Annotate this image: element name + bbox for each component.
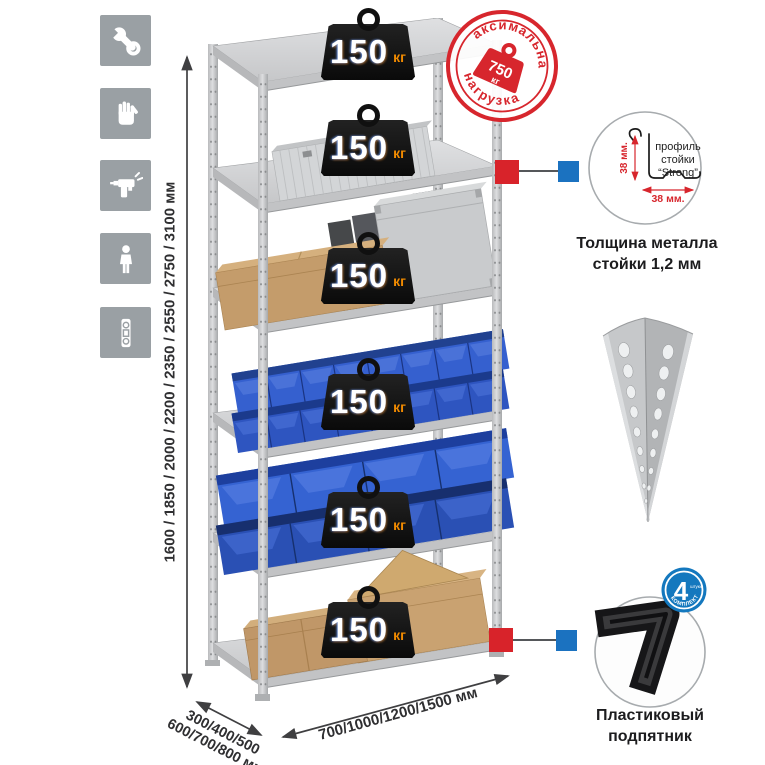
shelf-load-badge-4: 150кг (321, 358, 415, 430)
drill-glyph (109, 169, 143, 203)
callout-marker-blue-bottom (556, 630, 577, 651)
weight-handle-icon (357, 232, 380, 255)
max-load-stamp: максимальная нагрузка 750 кг (437, 2, 567, 130)
load-unit: кг (393, 517, 406, 533)
foot-caption-line2: подпятник (565, 726, 735, 747)
gloves-glyph (109, 97, 143, 131)
profile-label-line1: профиль (655, 141, 701, 153)
callout-marker-red-top (495, 160, 519, 184)
load-value: 150 (330, 257, 388, 295)
profile-dim-horizontal-label: 38 мм. (651, 193, 684, 205)
foot-caption-line1: Пластиковый (565, 705, 735, 726)
foot-caption: Пластиковый подпятник (565, 705, 735, 747)
shelf-load-badge-3: 150кг (321, 232, 415, 304)
load-unit: кг (393, 273, 406, 289)
plastic-foot-detail: 4 штуки в комплекте (580, 560, 730, 720)
load-unit: кг (393, 399, 406, 415)
shelf-load-badge-5: 150кг (321, 476, 415, 548)
load-value: 150 (330, 129, 388, 167)
spirit-level-icon (100, 307, 151, 358)
callout-line-top (515, 170, 560, 172)
weight-handle-icon (357, 586, 380, 609)
load-unit: кг (393, 145, 406, 161)
profile-dim-vertical-label: 38 мм. (619, 142, 630, 174)
profile-label-line2: стойки (661, 154, 695, 166)
depth-dimension-label: 300/400/500 600/700/800 мм (164, 702, 273, 765)
person-icon (100, 233, 151, 284)
shelf-load-badge-1: 150кг (321, 8, 415, 80)
shelf-load-badge-6: 150кг (321, 586, 415, 658)
wrench-icon (100, 15, 151, 66)
drill-icon (100, 160, 151, 211)
rack-post-back-left (205, 44, 220, 666)
post-profile-detail: 38 мм. 38 мм. профиль стойки “Strong” (585, 106, 705, 236)
spirit-level-glyph (109, 316, 143, 350)
profile-caption-line1: Толщина металла (557, 233, 737, 254)
load-value: 150 (330, 611, 388, 649)
profile-caption-line2: стойки 1,2 мм (557, 254, 737, 275)
weight-handle-icon (357, 8, 380, 31)
product-infographic: 1600 / 1850 / 2000 / 2200 / 2350 / 2550 … (0, 0, 765, 765)
callout-marker-blue-top (558, 161, 579, 182)
callout-marker-red-bottom (489, 628, 513, 652)
profile-label-line3: “Strong” (658, 167, 698, 179)
shelf-load-badge-2: 150кг (321, 104, 415, 176)
load-value: 150 (330, 33, 388, 71)
wrench-glyph (109, 24, 143, 58)
weight-handle-icon (357, 358, 380, 381)
quantity-word: штуки (690, 584, 702, 589)
load-value: 150 (330, 501, 388, 539)
weight-handle-icon (357, 476, 380, 499)
load-unit: кг (393, 627, 406, 643)
person-glyph (109, 242, 143, 276)
gloves-icon (100, 88, 151, 139)
weight-handle-icon (357, 104, 380, 127)
load-unit: кг (393, 49, 406, 65)
callout-line-bottom (510, 639, 558, 641)
profile-caption: Толщина металла стойки 1,2 мм (557, 233, 737, 275)
height-dimension-label: 1600 / 1850 / 2000 / 2200 / 2350 / 2550 … (162, 182, 179, 563)
load-value: 150 (330, 383, 388, 421)
angle-post-image (588, 298, 708, 533)
